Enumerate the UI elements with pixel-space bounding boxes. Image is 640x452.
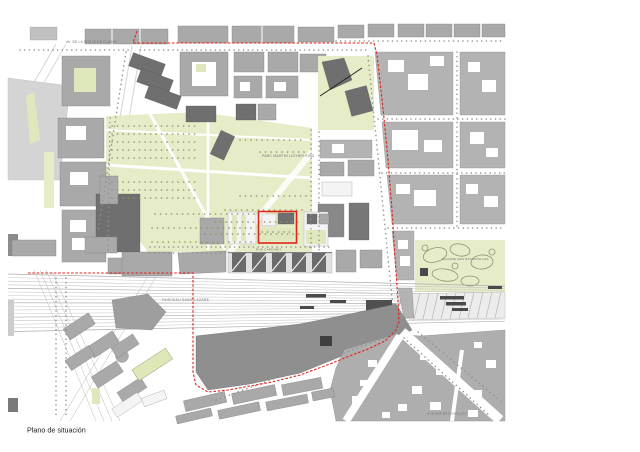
label-railway: FAISCEAU SAINT-LAZARE [162,298,210,302]
site-plan-map: AV. DE LA PORTE DE CLICHY PARC MARTIN LU… [0,0,640,452]
site-plan-page: AV. DE LA PORTE DE CLICHY PARC MARTIN LU… [0,0,640,452]
southwest-buildings [63,294,172,417]
label-street-top: AV. DE LA PORTE DE CLICHY [66,40,117,44]
label-street-bottom: RUE DES BATIGNOLLES [427,412,467,416]
south-center-buildings [176,377,335,424]
label-park: PARC MARTIN LUTHER KING [262,154,315,158]
label-square: SQUARE DES BATIGNOLLES [442,257,489,261]
label-street-cardinet: RUE CARDINET [256,247,282,251]
caption: Plano de situación [27,426,86,435]
